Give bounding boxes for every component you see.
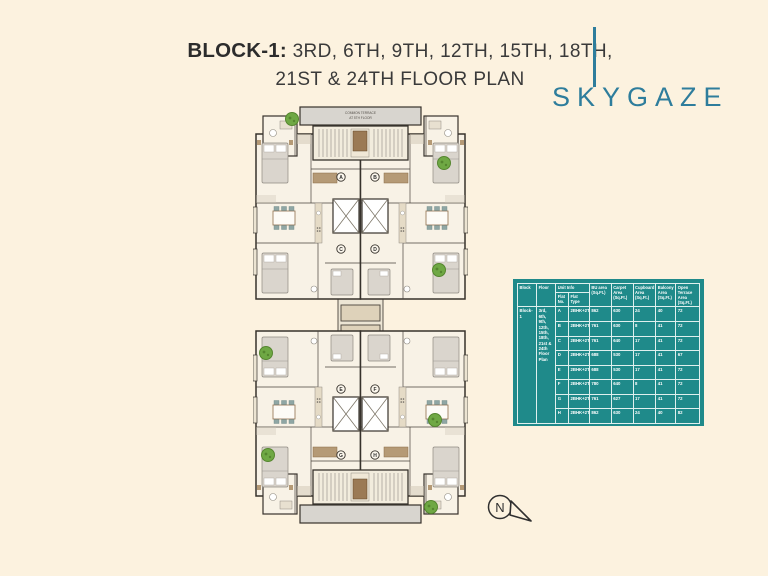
north-arrow-icon: N xyxy=(483,490,553,535)
flat-type-cell: 2BHK+2T xyxy=(568,394,589,409)
flat-no-cell: B xyxy=(556,322,569,337)
svg-text:G: G xyxy=(339,453,343,459)
open-terrace-cell: 67 xyxy=(676,351,700,366)
flat-no-cell: A xyxy=(556,307,569,322)
table-row: Block-13rd, 6th, 9th, 12th, 15th, 18th, … xyxy=(518,307,700,322)
bu-area-cell: 780 xyxy=(589,380,611,395)
header-balcony: Balcony Area (Sq.Ft.) xyxy=(656,284,676,307)
cupboard-cell: 17 xyxy=(633,351,656,366)
cupboard-cell: 17 xyxy=(633,336,656,351)
balcony-cell: 41 xyxy=(656,322,676,337)
cupboard-cell: 17 xyxy=(633,394,656,409)
tree-icon xyxy=(438,157,451,170)
unit-marker: C xyxy=(337,245,345,253)
header-cupboard: Cupboard Area (Sq.Ft.) xyxy=(633,284,656,307)
balcony-cell: 40 xyxy=(656,409,676,424)
unit-spec-table: Block Floor Unit Info BU area (Sq.Ft.) C… xyxy=(513,279,704,426)
carpet-cell: 630 xyxy=(611,322,633,337)
flat-no-cell: H xyxy=(556,409,569,424)
carpet-cell: 630 xyxy=(611,409,633,424)
carpet-cell: 630 xyxy=(611,307,633,322)
bu-area-cell: 688 xyxy=(589,365,611,380)
north-compass: N xyxy=(483,490,553,535)
svg-text:N: N xyxy=(495,500,504,515)
logo-bar xyxy=(593,27,596,87)
header-floor: Floor xyxy=(537,284,556,307)
header-block: Block xyxy=(518,284,537,307)
balcony-cell: 41 xyxy=(656,394,676,409)
svg-text:A: A xyxy=(339,175,343,181)
carpet-cell: 627 xyxy=(611,394,633,409)
carpet-cell: 530 xyxy=(611,351,633,366)
tree-icon xyxy=(262,449,275,462)
svg-text:D: D xyxy=(373,247,377,253)
floor-plan: COMMON TERRACE AT 5TH FLOOR A B C D E xyxy=(253,103,468,525)
bu-area-cell: 688 xyxy=(589,351,611,366)
flat-type-cell: 2BHK+2T xyxy=(568,365,589,380)
cupboard-cell: 8 xyxy=(633,380,656,395)
unit-marker: D xyxy=(371,245,379,253)
tree-icon xyxy=(433,264,446,277)
flat-type-cell: 2BHK+2T xyxy=(568,380,589,395)
bu-area-cell: 761 xyxy=(589,336,611,351)
svg-text:F: F xyxy=(373,387,376,393)
open-terrace-cell: 82 xyxy=(676,409,700,424)
balcony-cell: 41 xyxy=(656,336,676,351)
flat-type-cell: 2BHK+2T xyxy=(568,307,589,322)
flat-type-cell: 2BHK+2T xyxy=(568,322,589,337)
tree-icon xyxy=(260,347,273,360)
flat-no-cell: G xyxy=(556,394,569,409)
header-flat-no: Flat No. xyxy=(556,292,569,307)
bu-area-cell: 862 xyxy=(589,409,611,424)
cupboard-cell: 17 xyxy=(633,365,656,380)
tree-icon xyxy=(429,414,442,427)
bu-area-cell: 862 xyxy=(589,307,611,322)
table-header: Block Floor Unit Info BU area (Sq.Ft.) C… xyxy=(518,284,700,307)
brand-logo: SKYGAZE xyxy=(552,82,729,113)
unit-marker: B xyxy=(371,173,379,181)
open-terrace-cell: 72 xyxy=(676,322,700,337)
balcony-cell: 41 xyxy=(656,351,676,366)
bu-area-cell: 761 xyxy=(589,322,611,337)
table-body: Block-13rd, 6th, 9th, 12th, 15th, 18th, … xyxy=(518,307,700,424)
bottom-wing xyxy=(253,331,468,523)
header-carpet: Carpet Area (Sq.Ft.) xyxy=(611,284,633,307)
title-line1: BLOCK-1: 3RD, 6TH, 9TH, 12TH, 15TH, 18TH… xyxy=(175,36,625,66)
flat-type-cell: 2BHK+2T xyxy=(568,409,589,424)
block-cell: Block-1 xyxy=(518,307,537,424)
flat-no-cell: E xyxy=(556,365,569,380)
header-unit-info: Unit Info xyxy=(556,284,590,293)
header-open-terrace: Open Terrace Area (Sq.Ft.) xyxy=(676,284,700,307)
open-terrace-cell: 72 xyxy=(676,380,700,395)
svg-text:COMMON TERRACE: COMMON TERRACE xyxy=(345,111,376,115)
flat-no-cell: C xyxy=(556,336,569,351)
floor-plan-svg: COMMON TERRACE AT 5TH FLOOR A B C D E xyxy=(253,103,468,525)
balcony-cell: 40 xyxy=(656,307,676,322)
terrace-label: COMMON TERRACE AT 5TH FLOOR xyxy=(345,111,376,120)
unit-marker: A xyxy=(337,173,345,181)
svg-text:H: H xyxy=(373,453,377,459)
unit-marker: G xyxy=(337,451,345,459)
balcony-cell: 41 xyxy=(656,365,676,380)
flat-type-cell: 2BHK+2T xyxy=(568,351,589,366)
header-bu-area: BU area (Sq.Ft.) xyxy=(589,284,611,307)
block-label: BLOCK-1: xyxy=(187,39,287,62)
unit-marker: H xyxy=(371,451,379,459)
header-flat-type: Flat Type xyxy=(568,292,589,307)
unit-marker: E xyxy=(337,385,345,393)
balcony-cell: 41 xyxy=(656,380,676,395)
svg-text:AT 5TH FLOOR: AT 5TH FLOOR xyxy=(349,116,372,120)
carpet-cell: 640 xyxy=(611,380,633,395)
svg-text:C: C xyxy=(339,247,343,253)
flat-no-cell: F xyxy=(556,380,569,395)
carpet-cell: 530 xyxy=(611,365,633,380)
flat-type-cell: 2BHK+2T xyxy=(568,336,589,351)
open-terrace-cell: 72 xyxy=(676,365,700,380)
cupboard-cell: 24 xyxy=(633,409,656,424)
floor-cell: 3rd, 6th, 9th, 12th, 15th, 18th, 21st & … xyxy=(537,307,556,424)
unit-marker: F xyxy=(371,385,379,393)
cupboard-cell: 8 xyxy=(633,322,656,337)
flat-no-cell: D xyxy=(556,351,569,366)
tree-icon xyxy=(425,501,438,514)
open-terrace-cell: 72 xyxy=(676,336,700,351)
tree-icon xyxy=(286,113,299,126)
open-terrace-cell: 72 xyxy=(676,394,700,409)
cupboard-cell: 24 xyxy=(633,307,656,322)
open-terrace-cell: 72 xyxy=(676,307,700,322)
bu-area-cell: 761 xyxy=(589,394,611,409)
carpet-cell: 640 xyxy=(611,336,633,351)
svg-text:B: B xyxy=(373,175,377,181)
page: BLOCK-1: 3RD, 6TH, 9TH, 12TH, 15TH, 18TH… xyxy=(0,0,768,576)
